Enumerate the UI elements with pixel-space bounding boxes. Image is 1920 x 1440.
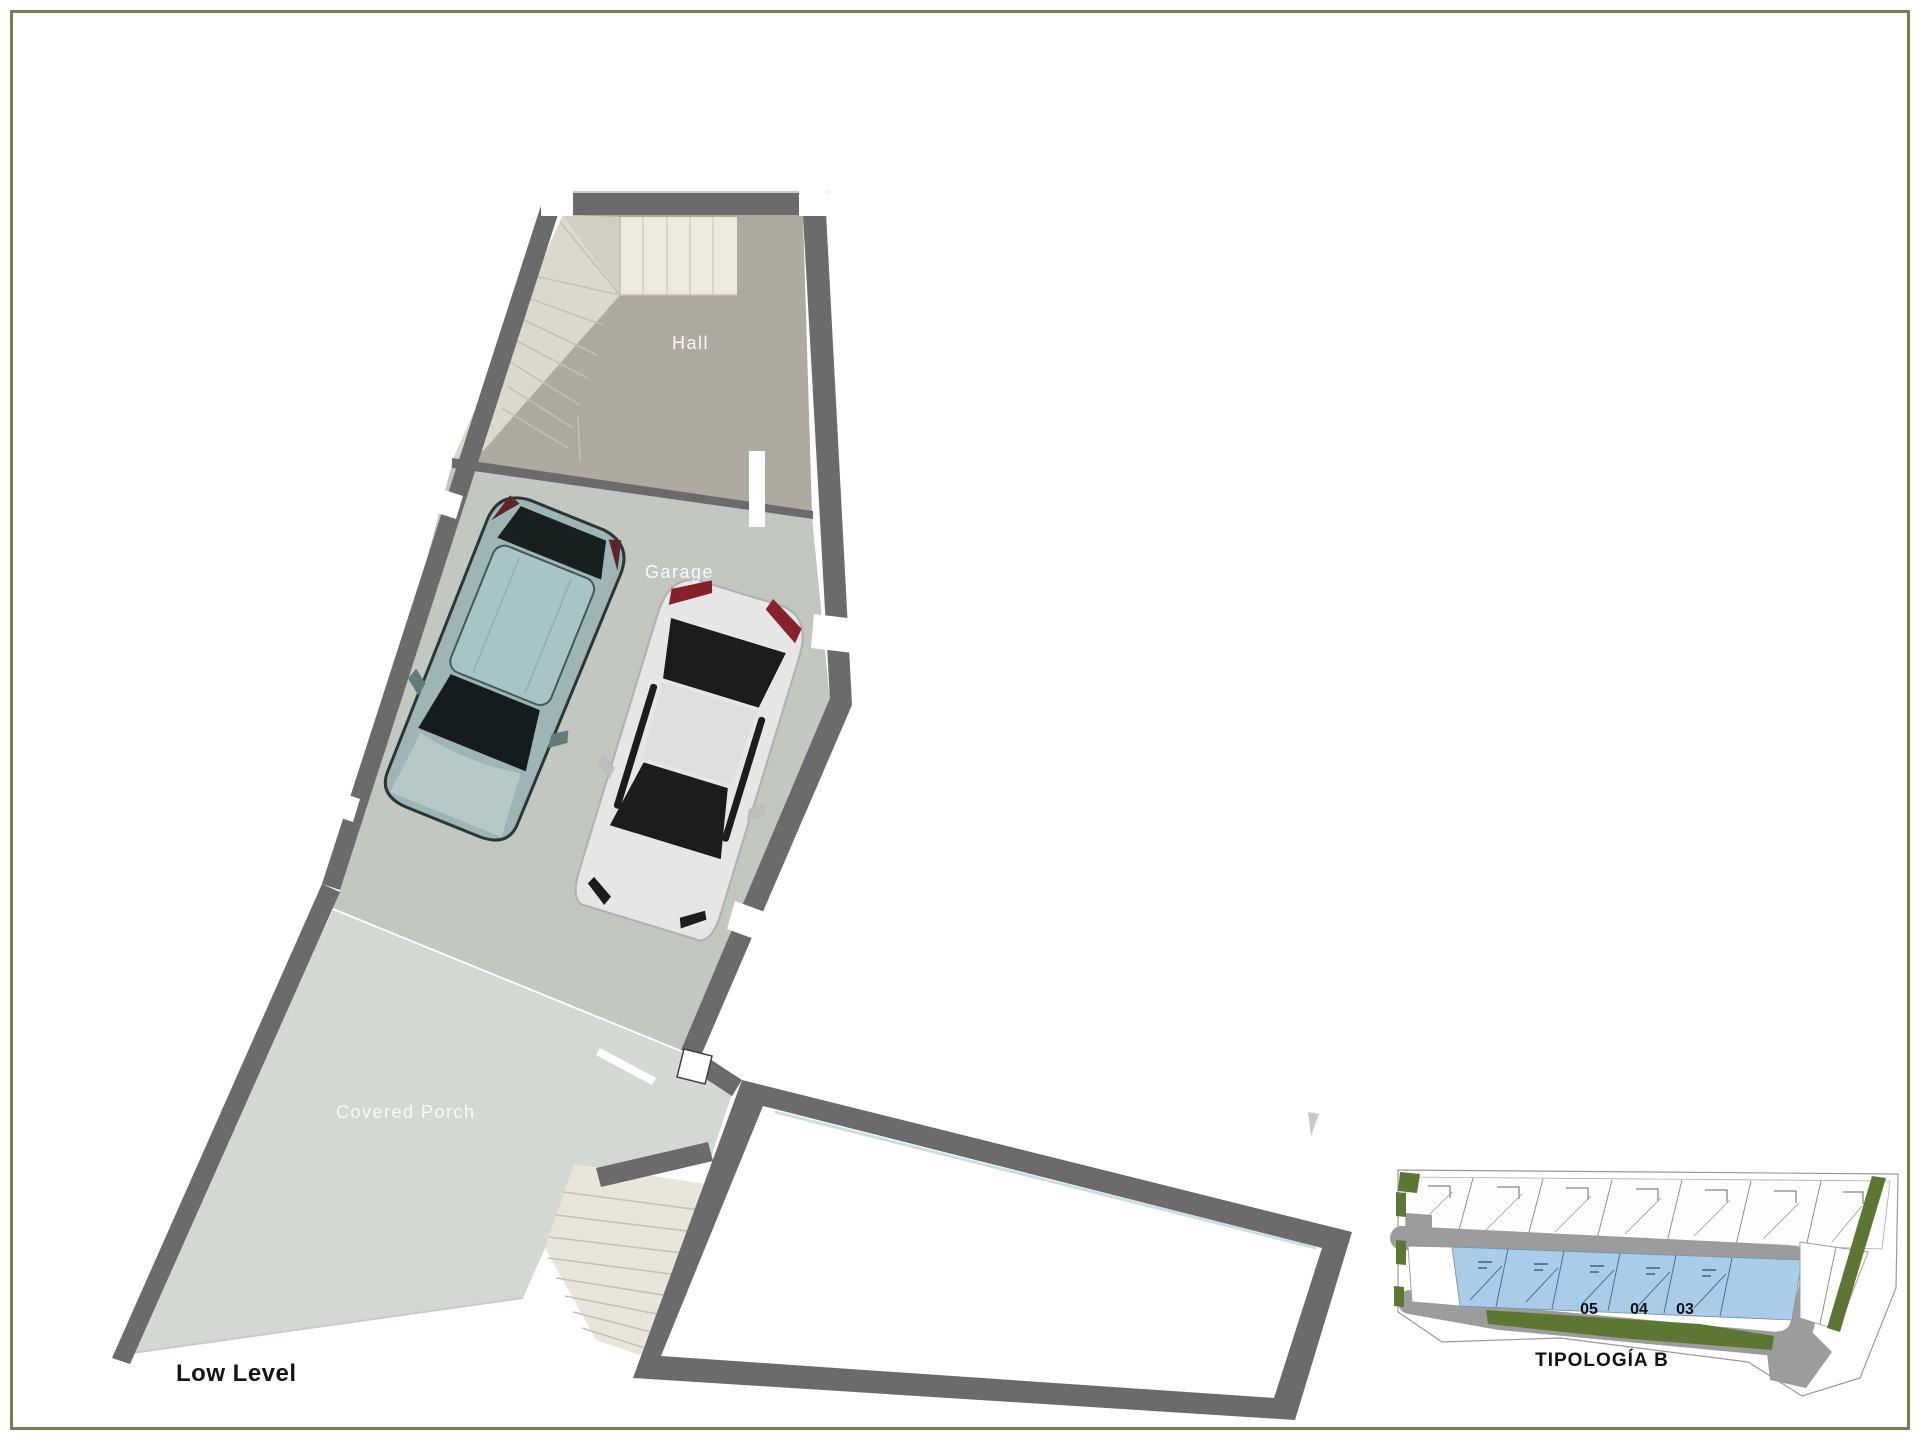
hall-label: Hall [672,333,709,353]
wall-stub-white [749,451,765,527]
window-top-right [799,189,827,216]
garage-label: Garage [645,562,714,582]
stray-mark [1308,1112,1319,1136]
building: Hall Garage Covered Porch [112,189,1352,1420]
site-inset: 05 04 03 TIPOLOGÍA B [1394,1170,1898,1396]
wall-top [573,193,800,215]
site-left-unit [1408,1246,1460,1306]
plan-title: Low Level [176,1360,297,1388]
site-inset-title: TIPOLOGÍA B [1535,1349,1669,1371]
junction-door-square [677,1049,712,1084]
stair-upper-flight [620,217,737,295]
covered-porch-label: Covered Porch [336,1102,476,1122]
unit-number-05: 05 [1580,1301,1598,1318]
door-right-wall [811,614,856,653]
window-top-left [541,189,573,216]
plan-canvas: Hall Garage Covered Porch [0,0,1920,1440]
unit-number-03: 03 [1676,1301,1694,1318]
unit-number-04: 04 [1630,1301,1648,1318]
